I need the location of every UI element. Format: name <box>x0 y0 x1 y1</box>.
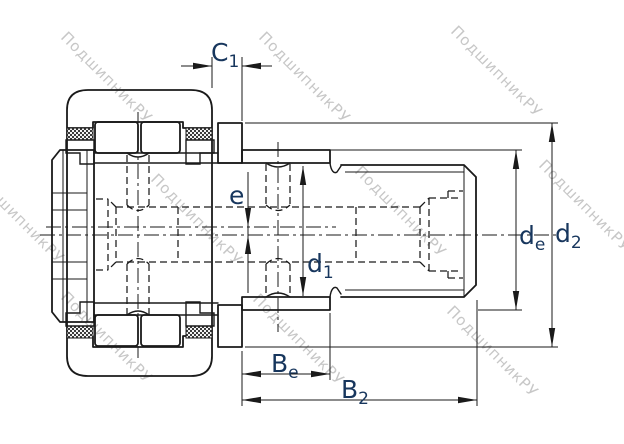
watermark-text: ПодшипникРУ <box>447 22 546 121</box>
dimension-c1: C1 <box>181 38 272 121</box>
bearing-technical-drawing: ПодшипникРУ ПодшипникРУ ПодшипникРУ Подш… <box>0 0 624 444</box>
dim-label-de: de <box>519 221 545 255</box>
watermark-text: ПодшипникРУ <box>443 302 542 401</box>
watermark-text: ПодшипникРУ <box>351 162 450 261</box>
dim-label-be: Be <box>271 349 299 383</box>
watermark-text: ПодшипникРУ <box>0 168 68 267</box>
dim-label-e: e <box>229 181 244 210</box>
dim-label-c1: C1 <box>211 38 239 72</box>
watermark-text: ПодшипникРУ <box>57 28 156 127</box>
dim-label-b2: B2 <box>341 375 369 409</box>
dim-label-d1: d1 <box>307 249 334 283</box>
watermark-text: ПодшипникРУ <box>255 28 354 127</box>
dimension-e: e <box>229 172 251 293</box>
centerlines <box>40 112 559 358</box>
dim-label-d2: d2 <box>555 219 582 253</box>
side-washers <box>66 140 214 326</box>
drawing-canvas: ПодшипникРУ ПодшипникРУ ПодшипникРУ Подш… <box>0 0 624 444</box>
dimension-d1: d1 <box>300 166 334 296</box>
dimension-de: de <box>244 150 545 310</box>
